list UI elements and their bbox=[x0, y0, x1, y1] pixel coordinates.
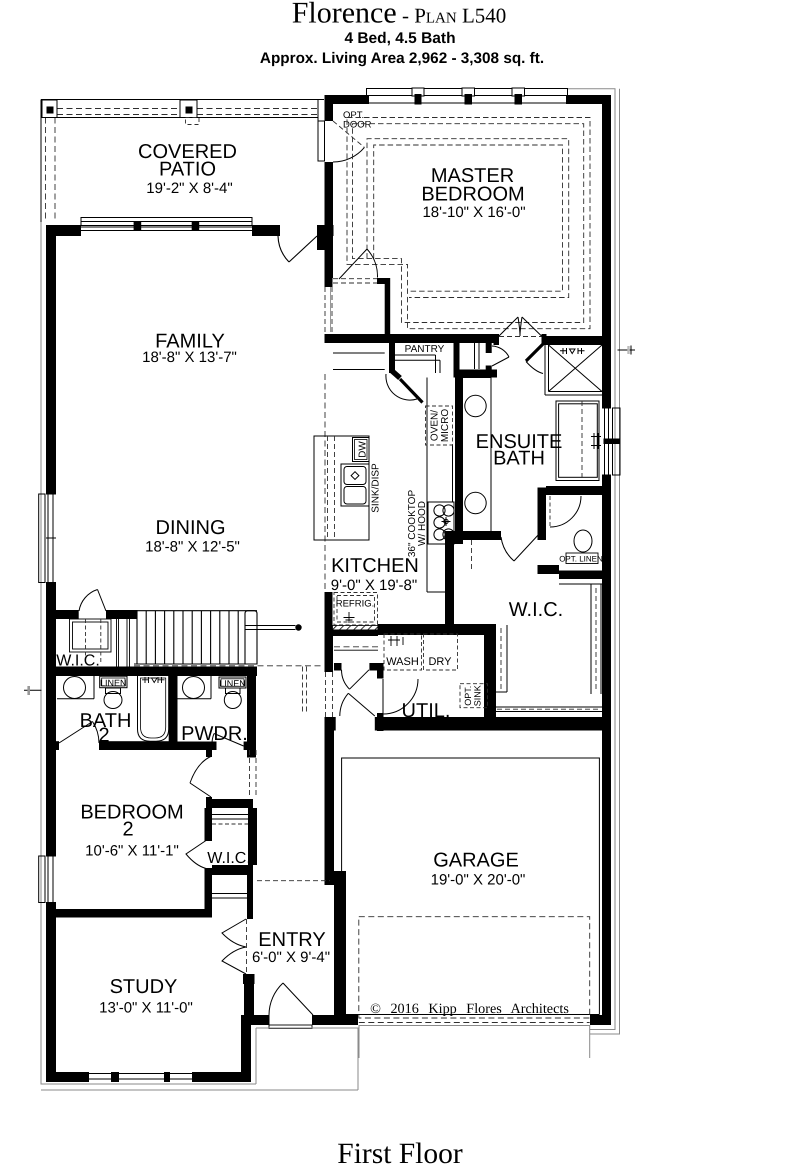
svg-text:STUDY: STUDY bbox=[110, 976, 178, 998]
svg-text:W/ HOOD: W/ HOOD bbox=[417, 501, 428, 546]
svg-text:W.I.C.: W.I.C. bbox=[509, 599, 563, 621]
svg-text:Approx. Living Area 2,962 - 3,: Approx. Living Area 2,962 - 3,308 sq. ft… bbox=[260, 50, 544, 67]
svg-text:LINEN: LINEN bbox=[219, 679, 246, 689]
svg-text:2: 2 bbox=[122, 819, 133, 841]
svg-text:KITCHEN: KITCHEN bbox=[331, 555, 419, 577]
svg-text:GARAGE: GARAGE bbox=[433, 850, 519, 872]
svg-text:18'-8" X 13'-7": 18'-8" X 13'-7" bbox=[142, 349, 237, 366]
svg-text:SINK/DISP: SINK/DISP bbox=[371, 463, 382, 513]
svg-text:18'-10" X 16'-0": 18'-10" X 16'-0" bbox=[422, 204, 525, 221]
svg-text:19'-2" X 8'-4": 19'-2" X 8'-4" bbox=[146, 180, 232, 197]
svg-text:DINING: DINING bbox=[156, 517, 226, 539]
svg-text:19'-0" X 20'-0": 19'-0" X 20'-0" bbox=[431, 872, 526, 889]
svg-text:13'-0" X 11'-0": 13'-0" X 11'-0" bbox=[99, 1000, 193, 1017]
svg-text:BATH: BATH bbox=[493, 448, 545, 470]
svg-text:Florence - Plan L540: Florence - Plan L540 bbox=[292, 0, 507, 30]
svg-text:OPT.: OPT. bbox=[463, 686, 473, 706]
svg-text:PANTRY: PANTRY bbox=[405, 344, 445, 355]
svg-text:WASH: WASH bbox=[386, 656, 419, 668]
svg-text:W.I.C.: W.I.C. bbox=[207, 850, 251, 867]
svg-text:DW: DW bbox=[358, 441, 369, 458]
svg-text:DRY: DRY bbox=[428, 656, 452, 668]
svg-text:REFRIG.: REFRIG. bbox=[336, 599, 375, 610]
svg-text:LINEN: LINEN bbox=[100, 678, 127, 688]
svg-text:4 Bed, 4.5 Bath: 4 Bed, 4.5 Bath bbox=[344, 30, 455, 47]
svg-text:6'-0" X 9'-4": 6'-0" X 9'-4" bbox=[252, 949, 330, 966]
svg-text:PATIO: PATIO bbox=[159, 159, 216, 181]
svg-text:OVEN/: OVEN/ bbox=[430, 410, 441, 441]
svg-text:9'-0" X 19'-8": 9'-0" X 19'-8" bbox=[331, 577, 417, 594]
svg-text:ENTRY: ENTRY bbox=[258, 929, 325, 951]
svg-text:OPT. LINEN: OPT. LINEN bbox=[559, 555, 603, 564]
svg-text:10'-6" X 11'-1": 10'-6" X 11'-1" bbox=[85, 843, 179, 860]
svg-text:MICRO: MICRO bbox=[440, 409, 451, 443]
svg-text:SINK: SINK bbox=[473, 685, 483, 706]
svg-text:First Floor: First Floor bbox=[337, 1138, 463, 1170]
svg-text:BEDROOM: BEDROOM bbox=[421, 184, 524, 206]
svg-text:18'-8" X 12'-5": 18'-8" X 12'-5" bbox=[145, 539, 240, 556]
